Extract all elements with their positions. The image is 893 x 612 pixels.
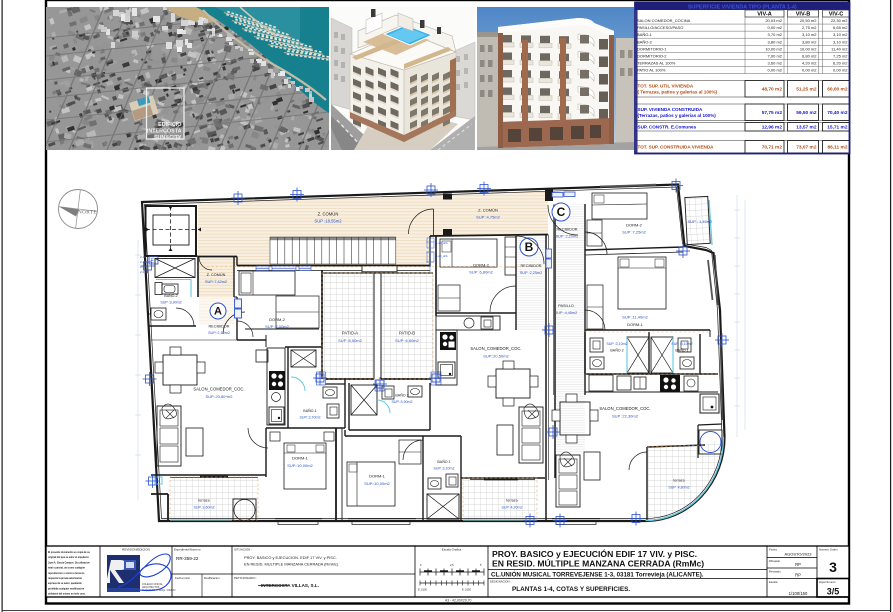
- svg-text:Expediente/Numero: Expediente/Numero: [174, 548, 201, 552]
- svg-text:SALON_COMEDOR_COC.: SALON_COMEDOR_COC.: [599, 406, 650, 411]
- svg-text:SUN&CITY: SUN&CITY: [154, 135, 182, 141]
- svg-text:(Terrazas, patios y galerias a: (Terrazas, patios y galerias al 100%): [638, 113, 717, 118]
- svg-text:6,80 m2: 6,80 m2: [802, 53, 817, 58]
- svg-text:Juan A. Garcia Campos. Su util: Juan A. Garcia Campos. Su utilizacion: [48, 561, 90, 564]
- svg-text:SUP :2,25m2: SUP :2,25m2: [520, 271, 543, 275]
- svg-text:3,80 m2: 3,80 m2: [768, 39, 783, 44]
- svg-text:terraza: terraza: [506, 499, 517, 503]
- svg-text:SUP.:20,50m2: SUP.:20,50m2: [483, 354, 509, 359]
- svg-text:11,40 m2: 11,40 m2: [831, 46, 848, 51]
- svg-text:Z. COMÚN: Z. COMÚN: [478, 208, 498, 213]
- svg-text:SUP :3,10m2: SUP :3,10m2: [671, 342, 692, 346]
- svg-text:SITUACION :: SITUACION :: [234, 548, 252, 552]
- svg-text:PATIO AL 100%: PATIO AL 100%: [637, 68, 666, 73]
- svg-text:Z. COMÚN: Z. COMÚN: [207, 272, 226, 277]
- svg-text:3,10 m2: 3,10 m2: [802, 32, 817, 37]
- svg-text:original del que es autor el a: original del que es autor el arquitecto: [48, 556, 89, 559]
- svg-text:SUP.:4,20m2: SUP.:4,20m2: [502, 506, 523, 510]
- svg-text:EN RESID. MÚLTIPLE MANZANA CER: EN RESID. MÚLTIPLE MANZANA CERRADA (RmMc…: [492, 558, 704, 569]
- svg-text:0,00 m2: 0,00 m2: [802, 68, 817, 73]
- svg-text:SUP :4,45m2: SUP :4,45m2: [555, 311, 578, 315]
- svg-text:DORM-1: DORM-1: [627, 322, 644, 327]
- svg-text:2.40: 2.40: [140, 255, 146, 259]
- svg-text:2.43: 2.43: [140, 270, 146, 274]
- svg-text:Numero Orden: Numero Orden: [819, 548, 838, 552]
- svg-text:10,00 m2: 10,00 m2: [800, 46, 817, 51]
- svg-text:El presente documento es copia: El presente documento es copia de su: [48, 551, 90, 554]
- svg-text:Revisado: Revisado: [769, 569, 781, 573]
- svg-text:SUP.:10,00m2: SUP.:10,00m2: [364, 481, 390, 486]
- svg-text:E 1/100: E 1/100: [418, 588, 427, 592]
- svg-text:RECIBIDOR: RECIBIDOR: [208, 325, 229, 329]
- svg-text:Escala: Escala: [769, 580, 778, 584]
- svg-text:BAÑO-2: BAÑO-2: [637, 39, 653, 44]
- svg-text:DESIGNACION :: DESIGNACION :: [490, 580, 511, 584]
- svg-text:TOT. SUP. CONSTRUIDA VIVIENDA: TOT. SUP. CONSTRUIDA VIVIENDA: [638, 145, 715, 150]
- svg-text:3: 3: [829, 559, 837, 575]
- svg-text:20,50 m2: 20,50 m2: [800, 18, 817, 23]
- svg-text:B: B: [525, 240, 534, 254]
- svg-text:PLANTAS 1-4, COTAS Y SUPERFICI: PLANTAS 1-4, COTAS Y SUPERFICIES.: [512, 586, 630, 593]
- svg-text:requerira la previa autorizaci: requerira la previa autorizacion: [48, 577, 83, 580]
- svg-text:59,50 m2: 59,50 m2: [796, 110, 817, 116]
- svg-text:expresa de su autor, quedando: expresa de su autor, quedando: [48, 582, 82, 585]
- svg-text:SUP. CONSTR. E.Comunes: SUP. CONSTR. E.Comunes: [638, 125, 697, 130]
- svg-text:RECIBIDOR: RECIBIDOR: [556, 228, 577, 232]
- svg-text:SUP :4,75m2: SUP :4,75m2: [476, 215, 500, 220]
- svg-text:A3 - 42,00X29,70: A3 - 42,00X29,70: [445, 599, 472, 603]
- svg-text:SUP :6,80m2: SUP :6,80m2: [469, 270, 493, 275]
- svg-text:SUP :7,00m2: SUP :7,00m2: [265, 324, 289, 329]
- svg-text:0,00 m2: 0,00 m2: [833, 68, 848, 73]
- svg-text:70,71 m2: 70,71 m2: [762, 145, 783, 151]
- svg-text:EN RESID. MULTIPLE MANZANA CER: EN RESID. MULTIPLE MANZANA CERRADA (RmMc…: [244, 562, 339, 567]
- svg-text:BAÑO 1: BAÑO 1: [675, 348, 688, 353]
- svg-text:Fecha: Fecha: [769, 547, 777, 551]
- svg-text:DORM-2: DORM-2: [473, 263, 490, 268]
- svg-text:6,20 m2: 6,20 m2: [833, 60, 848, 65]
- svg-text:22,30 m2: 22,30 m2: [831, 18, 848, 23]
- svg-text:PASILLO/ACCESO/PASO: PASILLO/ACCESO/PASO: [637, 25, 683, 30]
- svg-text:terraza: terraza: [673, 479, 684, 483]
- svg-text:60,00 m2: 60,00 m2: [827, 87, 848, 93]
- svg-text:PROY. BASICO y EJECUCION. EDIF: PROY. BASICO y EJECUCION. EDIF 17 VIV. y…: [244, 555, 337, 560]
- svg-text:RECIBIDOR: RECIBIDOR: [520, 264, 541, 268]
- svg-text:73,07 m2: 73,07 m2: [796, 145, 817, 151]
- svg-text:SUP.:2,10m2: SUP.:2,10m2: [208, 331, 230, 335]
- svg-text:PATIO-A: PATIO-A: [342, 331, 358, 336]
- svg-text:DORMITORIO-1: DORMITORIO-1: [637, 46, 667, 51]
- svg-text:RR-359-22: RR-359-22: [176, 556, 199, 561]
- svg-text:48,70 m2: 48,70 m2: [762, 87, 783, 93]
- svg-text:1.20_dcb: 1.20_dcb: [436, 241, 448, 245]
- svg-text:terraza: terraza: [198, 499, 209, 503]
- svg-text:( Terrazas, patios y galerias: ( Terrazas, patios y galerias al 100%): [638, 89, 718, 94]
- svg-text:RP: RP: [795, 562, 801, 567]
- svg-text:SUP.:3,90m2: SUP.:3,90m2: [392, 400, 413, 404]
- svg-text:TOT. SUP. UTIL VIVIENDA: TOT. SUP. UTIL VIVIENDA: [638, 84, 694, 89]
- svg-text:DORM-1: DORM-1: [369, 474, 386, 479]
- svg-text:prohibida cualquier modificaci: prohibida cualquier modificacion: [48, 588, 85, 590]
- svg-text:VIV-A: VIV-A: [757, 11, 772, 17]
- svg-text:57,75 m2: 57,75 m2: [762, 110, 783, 116]
- svg-text:SUP : 1,40m2: SUP : 1,40m2: [688, 219, 714, 224]
- svg-text:10,00 m2: 10,00 m2: [765, 46, 782, 51]
- svg-text:0,00 m2: 0,00 m2: [768, 68, 783, 73]
- svg-text:SUP. VIVIENDA CONSTRUIDA: SUP. VIVIENDA CONSTRUIDA: [638, 107, 704, 112]
- svg-text:PATIO-B: PATIO-B: [399, 331, 415, 336]
- svg-text:TERRAZAS AL 100%: TERRAZAS AL 100%: [637, 60, 676, 65]
- svg-text:3/5: 3/5: [827, 587, 840, 597]
- svg-text:SUP.:3,70m2: SUP.:3,70m2: [300, 416, 321, 420]
- svg-text:SUP.:10,00m2: SUP.:10,00m2: [287, 463, 313, 468]
- svg-text:15,71 m2: 15,71 m2: [827, 125, 848, 131]
- svg-text:7,25 m2: 7,25 m2: [833, 53, 848, 58]
- svg-text:SUP.:7,42m2: SUP.:7,42m2: [205, 280, 227, 284]
- svg-text:SUP.:3,10m2: SUP.:3,10m2: [434, 467, 455, 471]
- svg-text:BAÑO 2: BAÑO 2: [395, 393, 408, 398]
- svg-text:BAÑO-1: BAÑO-1: [303, 408, 316, 413]
- svg-text:VIV-B: VIV-B: [796, 11, 811, 17]
- svg-text:A: A: [214, 306, 222, 318]
- svg-text:SUP :18,55m2: SUP :18,55m2: [314, 219, 342, 224]
- svg-text:C: C: [557, 205, 566, 219]
- svg-text:DORM-1: DORM-1: [292, 456, 309, 461]
- svg-text:DORM-2: DORM-2: [626, 223, 643, 228]
- svg-text:1/100/150: 1/100/150: [789, 591, 808, 596]
- svg-text:SALON COMEDOR_COCINA: SALON COMEDOR_COCINA: [637, 18, 691, 23]
- svg-text:RP: RP: [795, 572, 801, 577]
- svg-text:SUP :6,50m2: SUP :6,50m2: [338, 338, 362, 343]
- svg-text:Escala Grafica: Escala Grafica: [442, 548, 462, 552]
- svg-text:Z. COMÚN: Z. COMÚN: [318, 212, 339, 217]
- svg-text:6,65 m2: 6,65 m2: [833, 25, 848, 30]
- svg-text:20,03 m2: 20,03 m2: [765, 18, 782, 23]
- svg-text:13,57 m2: 13,57 m2: [796, 125, 817, 131]
- svg-text:7,00 m2: 7,00 m2: [768, 53, 783, 58]
- svg-text:PASILLO: PASILLO: [558, 304, 574, 308]
- svg-text:86,11 m2: 86,11 m2: [827, 145, 847, 151]
- svg-text:REVISION/EDICION: REVISION/EDICION: [122, 548, 150, 552]
- svg-text:E 1/150: E 1/150: [462, 588, 471, 592]
- svg-text:BAÑO-2: BAÑO-2: [164, 293, 177, 298]
- svg-text:AGOSTO/2023: AGOSTO/2023: [784, 551, 812, 556]
- svg-text:0,00 m2: 0,00 m2: [768, 25, 783, 30]
- svg-text:SUP.:3,60m2: SUP.:3,60m2: [194, 506, 215, 510]
- svg-text:2,75 m2: 2,75 m2: [802, 25, 817, 30]
- svg-text:BAÑO 1: BAÑO 1: [437, 459, 450, 464]
- svg-text:reproduccion o cesion a tercer: reproduccion o cesion a terceros,: [48, 572, 85, 575]
- svg-text:2.41: 2.41: [140, 260, 146, 264]
- svg-text:SUP :3,90m2: SUP :3,90m2: [160, 301, 181, 305]
- svg-text:EDIFICIO: EDIFICIO: [158, 122, 181, 128]
- svg-text:2.42: 2.42: [140, 265, 146, 269]
- svg-text:SUP :22,30m2: SUP :22,30m2: [612, 414, 639, 419]
- svg-text:DORM-2: DORM-2: [269, 317, 286, 322]
- svg-text:INTERCOSTA: INTERCOSTA: [147, 129, 182, 135]
- svg-text:SUP.:20,80*m2: SUP.:20,80*m2: [205, 394, 233, 399]
- svg-text:BAÑO-1: BAÑO-1: [637, 32, 653, 37]
- svg-text:NORTE: NORTE: [78, 210, 97, 216]
- svg-text:3,10 m2: 3,10 m2: [833, 39, 848, 44]
- svg-text:Dibujado: Dibujado: [769, 559, 780, 563]
- svg-text:3,70 m2: 3,70 m2: [768, 32, 783, 37]
- svg-text:PETICIONARIO :: PETICIONARIO :: [234, 576, 257, 580]
- svg-text:Fecha inicio: Fecha inicio: [175, 576, 190, 580]
- svg-text:SUP :11,40m2: SUP :11,40m2: [622, 315, 648, 320]
- svg-text:12,96 m2: 12,96 m2: [762, 125, 783, 131]
- svg-text:SUP :4,80m2: SUP :4,80m2: [668, 486, 689, 490]
- svg-text:SALON_COMEDOR_COC.: SALON_COMEDOR_COC.: [193, 387, 244, 392]
- svg-text:4,20 m2: 4,20 m2: [802, 60, 817, 65]
- svg-text:1.20_dcb: 1.20_dcb: [436, 254, 448, 258]
- svg-text:70,40 m2: 70,40 m2: [827, 110, 848, 116]
- svg-text:unilateral del mismo en todo c: unilateral del mismo en todo caso.: [48, 593, 86, 596]
- svg-text:total o parcial, asi como cual: total o parcial, asi como cualquier: [48, 567, 85, 570]
- svg-text:Modificacion: Modificacion: [204, 576, 220, 580]
- svg-text:DORMITORIO-2: DORMITORIO-2: [637, 53, 667, 58]
- svg-text:Hoja Numero: Hoja Numero: [819, 580, 836, 584]
- svg-text:SUP :7,25m2: SUP :7,25m2: [622, 230, 646, 235]
- svg-text:PROY. BASICO y EJECUCIÓN EDIF: PROY. BASICO y EJECUCIÓN EDIF 17 VIV. y …: [492, 548, 697, 559]
- svg-text:3,10 m2: 3,10 m2: [833, 32, 848, 37]
- svg-text:SUP :6,60m2: SUP :6,60m2: [395, 338, 419, 343]
- svg-text:CL.UNIÓN MUSICAL TORREVEJENSE: CL.UNIÓN MUSICAL TORREVEJENSE 1-3, 03181…: [491, 571, 704, 579]
- svg-text:VIV-C: VIV-C: [829, 11, 844, 17]
- svg-text:3,60 m2: 3,60 m2: [768, 60, 783, 65]
- svg-text:SUP :3,10m2: SUP :3,10m2: [606, 342, 627, 346]
- svg-text:BAÑO 2: BAÑO 2: [610, 348, 623, 353]
- svg-text:2,5: 2,5: [450, 563, 454, 567]
- svg-text:SALON_COMEDOR_COC.: SALON_COMEDOR_COC.: [470, 346, 521, 351]
- svg-text:SUP :2,20m2: SUP :2,20m2: [556, 235, 579, 239]
- svg-text:51,25 m2: 51,25 m2: [796, 87, 817, 93]
- svg-text:3,80 m2: 3,80 m2: [802, 39, 817, 44]
